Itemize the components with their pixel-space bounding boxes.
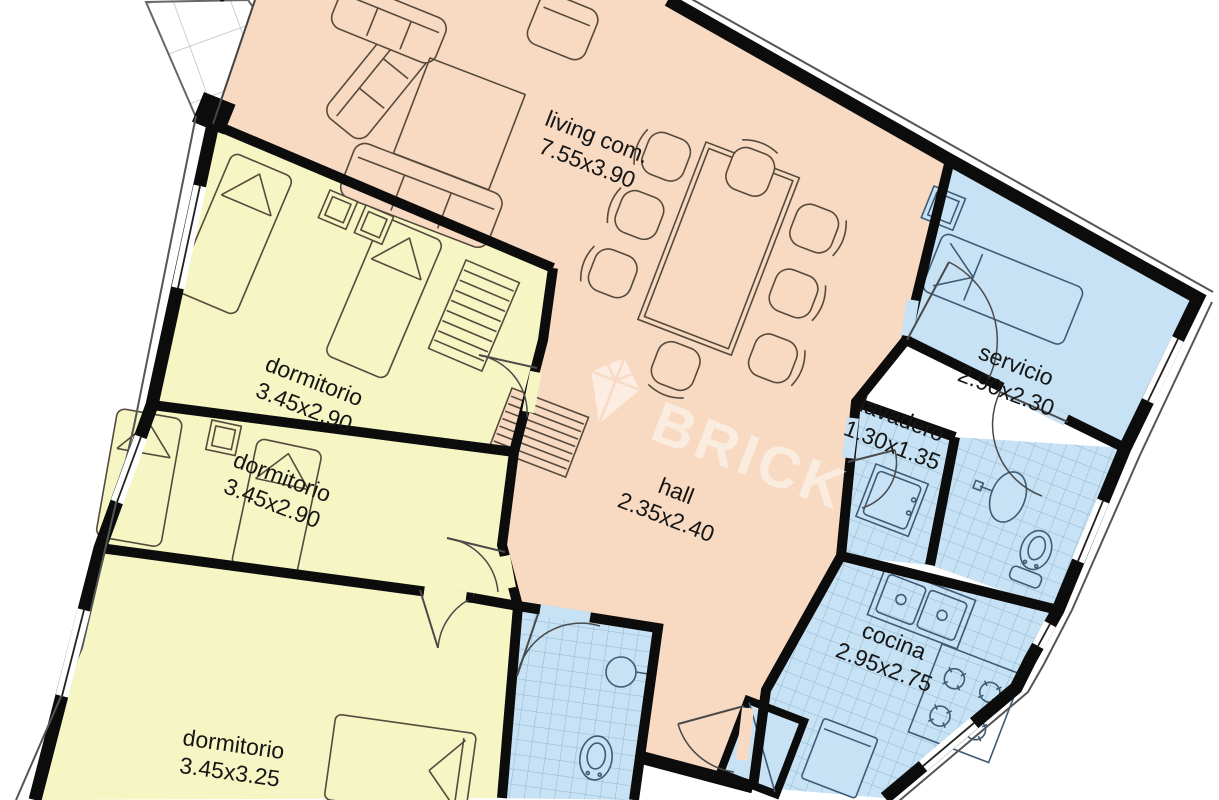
- dorm2-door-gap: [504, 556, 510, 588]
- floor-plan-canvas: BRICK living com. 7.55x3.90 dormitorio 3…: [0, 0, 1219, 800]
- dorm3-door-gap: [424, 592, 466, 598]
- bath-center-door-gap: [540, 610, 590, 618]
- dorm1-door-gap: [528, 372, 536, 412]
- cocina-door-gap: [742, 708, 748, 760]
- sink: [606, 657, 636, 687]
- nightstand: [206, 420, 242, 456]
